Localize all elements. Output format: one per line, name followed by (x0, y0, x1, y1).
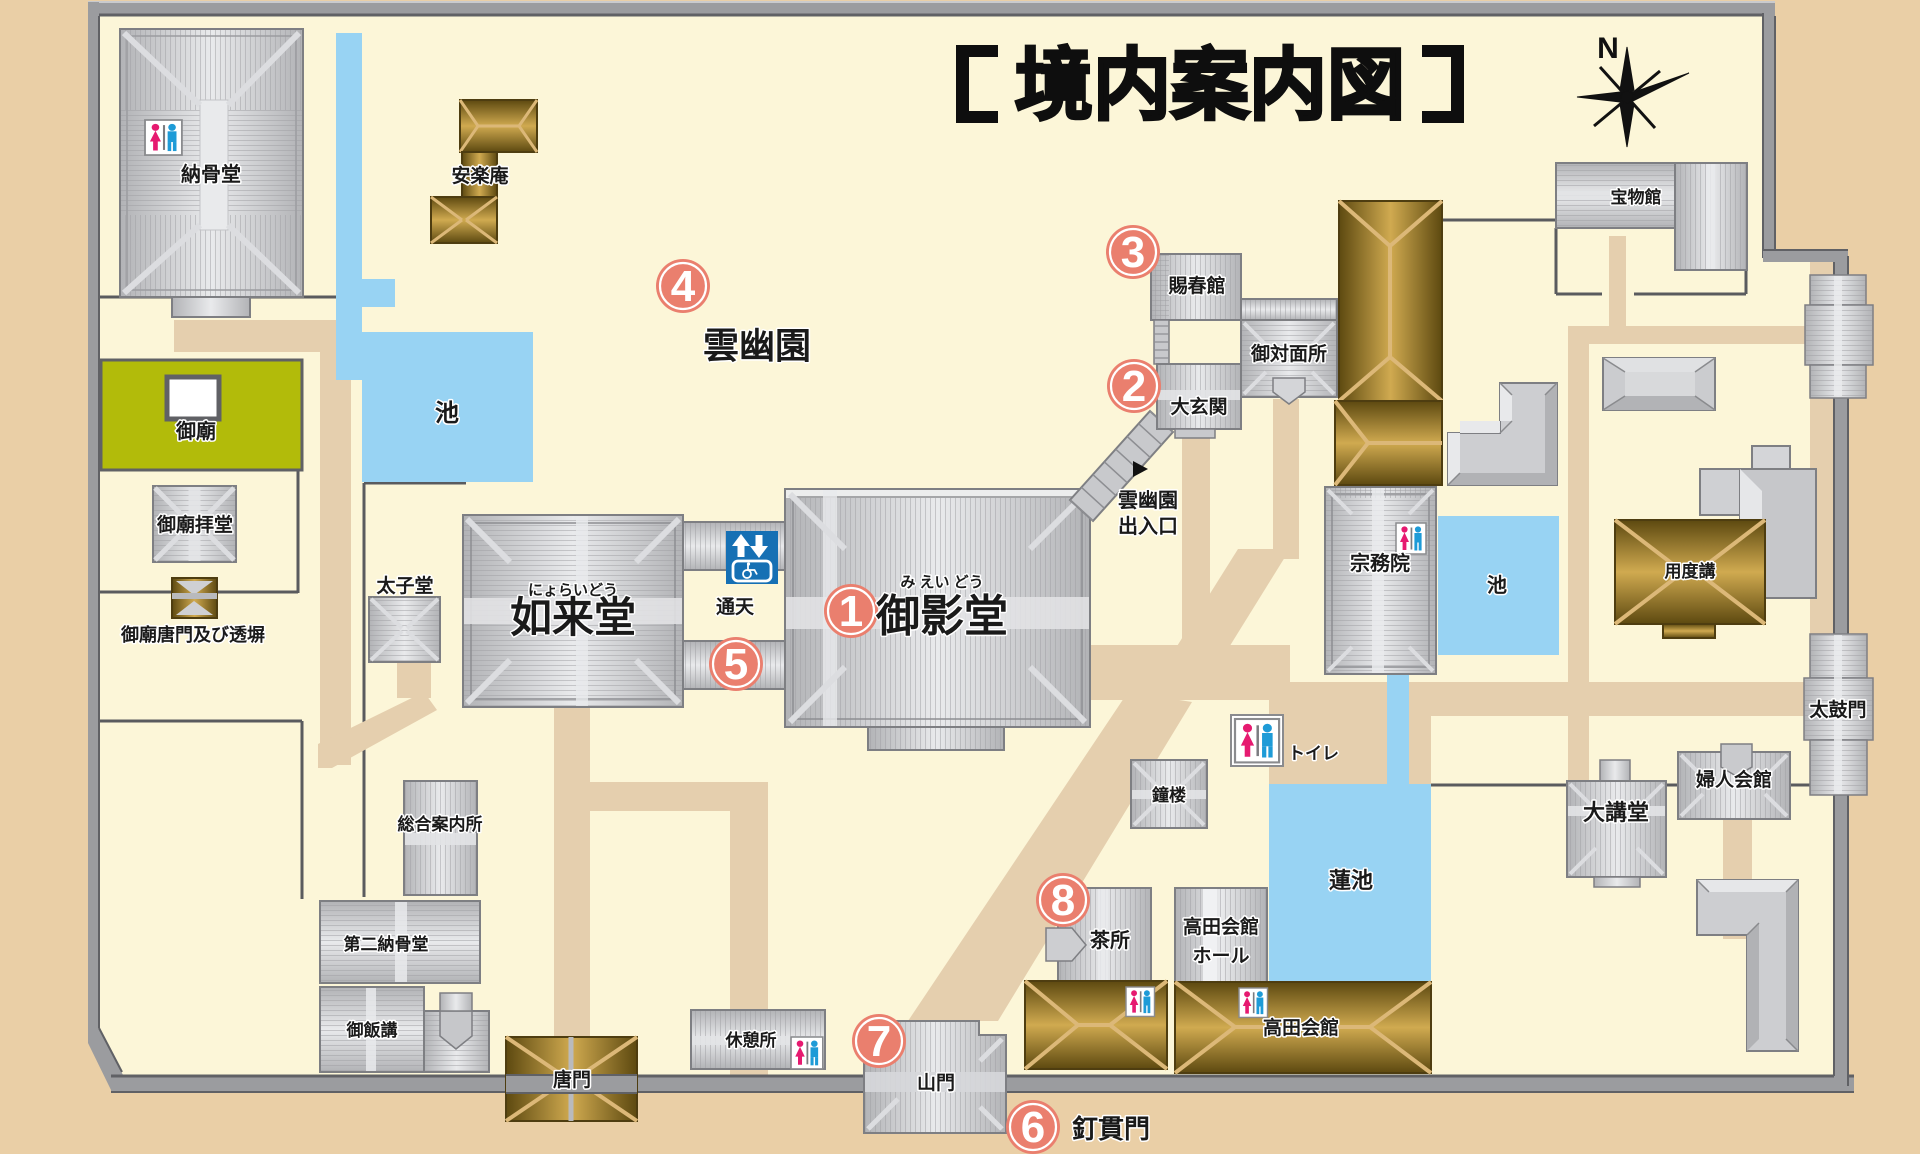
svg-text:如来堂: 如来堂 (510, 594, 636, 641)
svg-text:2: 2 (1122, 362, 1146, 411)
svg-text:用度講: 用度講 (1665, 561, 1716, 581)
svg-text:蓮池: 蓮池 (1329, 868, 1373, 893)
svg-text:4: 4 (671, 262, 696, 311)
svg-text:釘貫門: 釘貫門 (1072, 1114, 1150, 1144)
svg-text:鐘楼: 鐘楼 (1152, 785, 1186, 805)
svg-text:大玄関: 大玄関 (1170, 395, 1227, 418)
svg-text:唐門: 唐門 (553, 1068, 591, 1091)
svg-text:通天: 通天 (716, 596, 755, 618)
svg-text:御廟唐門及び透塀: 御廟唐門及び透塀 (120, 624, 265, 645)
svg-text:トイレ: トイレ (1288, 744, 1339, 763)
svg-text:第二納骨堂: 第二納骨堂 (344, 934, 429, 954)
svg-text:高田会館: 高田会館 (1263, 1016, 1339, 1039)
svg-text:池: 池 (435, 400, 459, 427)
svg-text:ホール: ホール (1192, 946, 1249, 967)
svg-text:雲幽園: 雲幽園 (1118, 489, 1178, 512)
svg-text:納骨堂: 納骨堂 (181, 162, 241, 186)
svg-text:8: 8 (1051, 876, 1075, 925)
svg-text:御廟: 御廟 (175, 419, 216, 443)
svg-text:御影堂: 御影堂 (875, 592, 1008, 641)
svg-text:婦人会館: 婦人会館 (1695, 768, 1772, 791)
svg-text:宗務院: 宗務院 (1350, 551, 1410, 575)
svg-text:大講堂: 大講堂 (1583, 800, 1649, 825)
svg-text:境内案内図: 境内案内図 (1015, 41, 1405, 129)
svg-text:み えい どう: み えい どう (900, 574, 983, 591)
svg-text:池: 池 (1487, 574, 1507, 597)
svg-text:5: 5 (724, 640, 748, 689)
svg-text:3: 3 (1121, 228, 1145, 277)
svg-text:宝物館: 宝物館 (1611, 187, 1662, 207)
svg-text:安楽庵: 安楽庵 (451, 164, 508, 187)
svg-text:御飯講: 御飯講 (346, 1020, 398, 1040)
svg-text:山門: 山門 (917, 1072, 955, 1094)
svg-text:賜春館: 賜春館 (1168, 274, 1225, 297)
svg-text:御対面所: 御対面所 (1250, 342, 1327, 365)
svg-text:休憩所: 休憩所 (725, 1030, 777, 1050)
svg-text:1: 1 (839, 587, 863, 636)
svg-text:7: 7 (867, 1017, 891, 1066)
svg-text:出入口: 出入口 (1118, 515, 1178, 538)
svg-text:雲幽園: 雲幽園 (703, 325, 811, 366)
svg-text:太子堂: 太子堂 (376, 574, 433, 597)
svg-text:高田会館: 高田会館 (1183, 915, 1259, 938)
svg-text:太鼓門: 太鼓門 (1809, 698, 1866, 721)
svg-text:N: N (1597, 32, 1619, 65)
svg-text:御廟拝堂: 御廟拝堂 (156, 513, 233, 536)
svg-text:茶所: 茶所 (1090, 929, 1130, 952)
svg-text:6: 6 (1021, 1103, 1045, 1152)
svg-text:総合案内所: 総合案内所 (398, 814, 483, 834)
